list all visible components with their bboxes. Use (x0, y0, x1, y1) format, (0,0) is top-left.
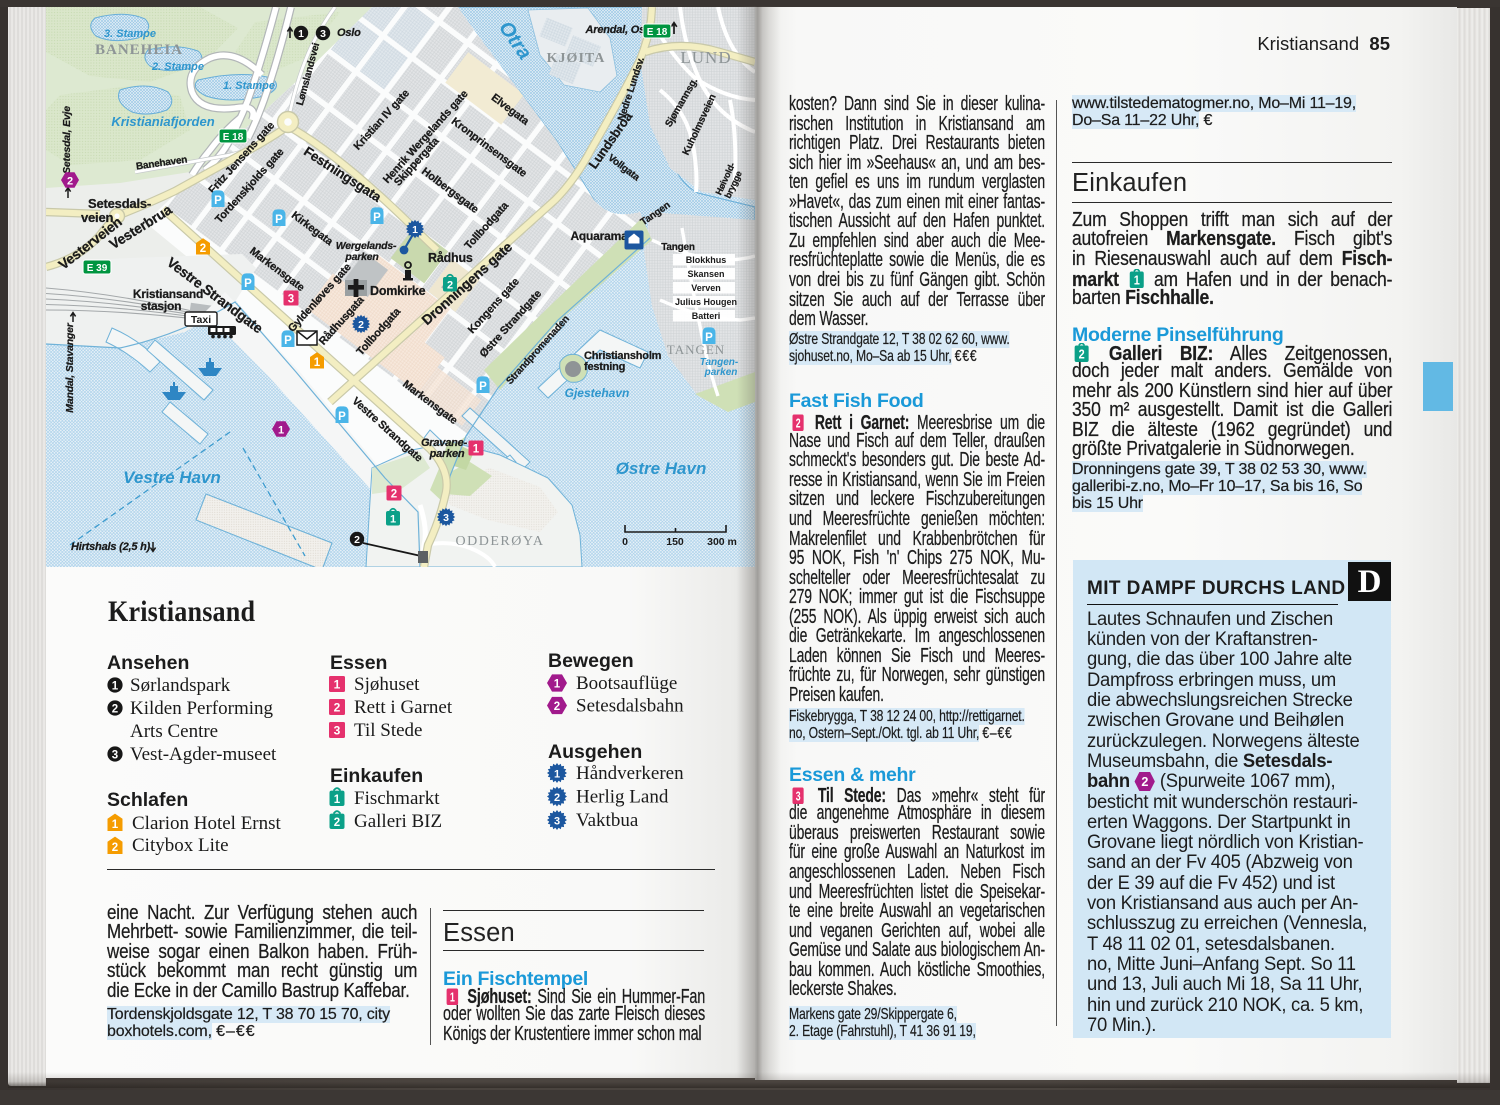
svg-text:Tangen: Tangen (661, 242, 695, 253)
svg-text:P: P (705, 332, 713, 344)
svg-text:1: 1 (412, 224, 418, 236)
svg-text:Setesdals-: Setesdals- (88, 196, 151, 211)
svg-text:1: 1 (112, 681, 119, 693)
svg-text:3: 3 (334, 724, 341, 738)
svg-text:Domkirke: Domkirke (370, 284, 426, 298)
svg-text:Kristianiafjorden: Kristianiafjorden (111, 114, 214, 129)
svg-text:1: 1 (334, 794, 341, 806)
svg-text:Vaktbua: Vaktbua (576, 810, 639, 831)
svg-text:Til Stede: Til Stede (354, 720, 422, 741)
svg-text:Skansen: Skansen (687, 269, 724, 279)
svg-text:1: 1 (554, 679, 561, 691)
svg-text:P: P (275, 214, 283, 226)
svg-text:2: 2 (112, 704, 118, 716)
svg-text:Bootsauflüge: Bootsauflüge (576, 673, 677, 694)
svg-text:3: 3 (796, 790, 801, 804)
svg-text:3: 3 (443, 512, 449, 524)
svg-text:P: P (338, 411, 346, 423)
svg-text:P: P (373, 212, 381, 224)
svg-text:KJØITA: KJØITA (547, 51, 606, 66)
svg-text:2: 2 (67, 175, 73, 187)
svg-text:Herlig Land: Herlig Land (576, 787, 669, 808)
svg-text:E 18: E 18 (223, 132, 244, 143)
svg-text:2. Stampe: 2. Stampe (151, 61, 204, 73)
svg-text:2: 2 (554, 792, 560, 804)
svg-text:Galleri BIZ: Galleri BIZ (354, 811, 442, 832)
svg-text:parken: parken (704, 367, 738, 378)
svg-text:2: 2 (391, 488, 397, 500)
svg-text:1: 1 (390, 514, 396, 526)
svg-text:P: P (284, 335, 292, 347)
svg-text:Hirtshals (2,5 h): Hirtshals (2,5 h) (71, 541, 151, 553)
svg-text:veien: veien (81, 210, 114, 225)
svg-text:Håndverkeren: Håndverkeren (576, 763, 684, 784)
svg-text:Fischmarkt: Fischmarkt (354, 788, 440, 809)
svg-text:Sørlandspark: Sørlandspark (130, 675, 231, 696)
svg-text:1: 1 (314, 357, 321, 369)
svg-text:3. Stampe: 3. Stampe (104, 28, 156, 40)
svg-text:3: 3 (554, 815, 560, 827)
svg-text:E 18: E 18 (647, 27, 668, 38)
svg-text:stasjon: stasjon (141, 299, 182, 313)
svg-text:E 39: E 39 (87, 263, 108, 274)
svg-text:Østre Havn: Østre Havn (616, 459, 707, 478)
svg-text:Blokkhus: Blokkhus (686, 255, 727, 265)
svg-text:3: 3 (320, 28, 326, 40)
svg-text:2: 2 (334, 701, 341, 715)
svg-text:Arts Centre: Arts Centre (130, 721, 218, 742)
svg-text:parken: parken (429, 448, 465, 460)
svg-text:Vestre Havn: Vestre Havn (123, 468, 221, 487)
svg-text:2: 2 (1079, 347, 1086, 361)
svg-text:festning: festning (584, 361, 625, 373)
svg-text:Aquarama: Aquarama (570, 229, 628, 243)
svg-text:2: 2 (796, 417, 801, 431)
svg-text:1: 1 (112, 819, 119, 831)
svg-text:Citybox Lite: Citybox Lite (132, 835, 229, 856)
svg-text:1: 1 (450, 991, 455, 1005)
svg-text:TANGEN: TANGEN (667, 342, 725, 357)
svg-text:2: 2 (200, 243, 206, 255)
svg-text:Sjøhuset: Sjøhuset (354, 674, 420, 695)
svg-text:Clarion Hotel Ernst: Clarion Hotel Ernst (132, 813, 282, 834)
svg-text:2: 2 (447, 280, 453, 292)
svg-text:1: 1 (554, 768, 560, 780)
svg-text:Rett i Garnet: Rett i Garnet (354, 697, 453, 718)
svg-text:ODDERØYA: ODDERØYA (456, 534, 545, 549)
svg-text:150: 150 (666, 536, 684, 548)
svg-text:Rådhus: Rådhus (428, 251, 473, 265)
svg-text:3: 3 (112, 750, 118, 762)
svg-text:BANEHEIA: BANEHEIA (95, 42, 183, 58)
svg-text:300 m: 300 m (707, 536, 737, 548)
svg-text:1: 1 (298, 28, 304, 40)
svg-text:2: 2 (354, 534, 360, 546)
svg-text:P: P (244, 278, 252, 290)
svg-text:Mandal, Stavanger: Mandal, Stavanger (64, 322, 76, 412)
svg-text:Vest-Agder-museet: Vest-Agder-museet (130, 744, 277, 765)
svg-text:Gjestehavn: Gjestehavn (565, 386, 630, 400)
svg-text:Setesdalsbahn: Setesdalsbahn (576, 696, 684, 717)
svg-text:1: 1 (334, 678, 341, 692)
svg-text:parken: parken (344, 251, 378, 263)
svg-text:2: 2 (334, 817, 340, 829)
svg-text:P: P (479, 381, 487, 393)
svg-text:0: 0 (622, 536, 628, 548)
svg-text:2: 2 (358, 319, 364, 331)
svg-text:1: 1 (278, 424, 284, 436)
svg-text:Verven: Verven (691, 283, 721, 293)
svg-text:1: 1 (473, 443, 480, 455)
svg-text:Oslo: Oslo (337, 27, 361, 39)
svg-text:P: P (214, 195, 222, 207)
svg-text:2: 2 (112, 842, 118, 854)
svg-text:2: 2 (554, 701, 560, 713)
svg-text:3: 3 (288, 293, 294, 305)
svg-text:LUND: LUND (680, 48, 731, 67)
svg-text:Julius Hougen: Julius Hougen (675, 297, 737, 307)
svg-text:Batteri: Batteri (692, 311, 721, 321)
svg-text:Taxi: Taxi (191, 314, 211, 326)
svg-text:Setesdal, Evje: Setesdal, Evje (61, 106, 73, 174)
svg-text:Kilden Performing: Kilden Performing (130, 698, 274, 719)
svg-text:1. Stampe: 1. Stampe (223, 80, 275, 92)
svg-text:2: 2 (1142, 774, 1149, 789)
